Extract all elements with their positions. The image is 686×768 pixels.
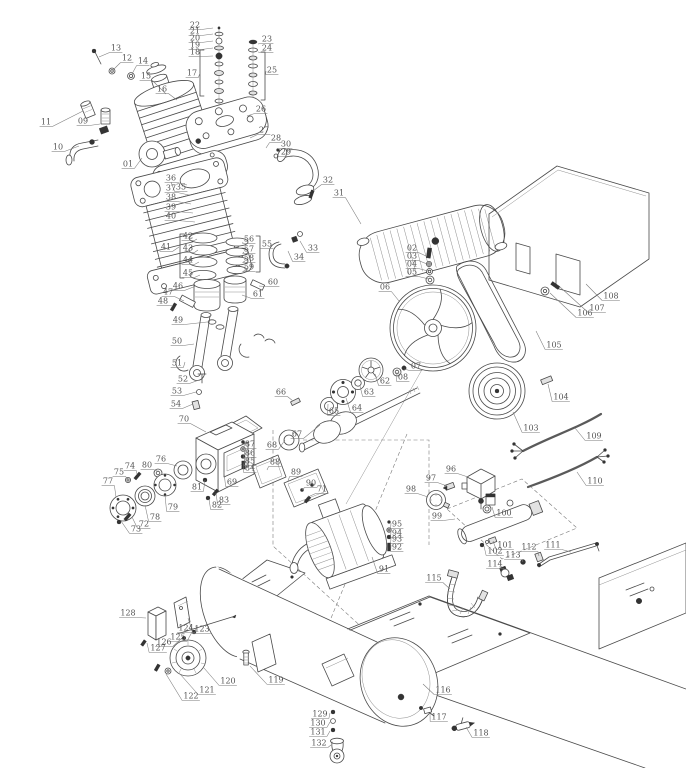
electric-motor — [295, 487, 397, 592]
piston-left — [194, 280, 220, 312]
exploded-parts-diagram: 0102030405060708091011121314151617181920… — [0, 0, 686, 768]
callout-leader-19 — [201, 48, 213, 50]
wheel — [170, 640, 206, 676]
callout-23: 23 — [262, 35, 272, 44]
callout-29: 29 — [281, 148, 291, 157]
callout-111: 111 — [545, 541, 560, 550]
callout-99: 99 — [432, 512, 442, 521]
wheel-fasteners — [154, 664, 171, 674]
callout-89: 89 — [291, 468, 301, 477]
callout-leader-70 — [190, 424, 206, 433]
callout-leader-99 — [443, 519, 455, 521]
callout-48: 48 — [158, 297, 168, 306]
caster-wheel — [330, 738, 344, 763]
callout-112: 112 — [521, 543, 536, 552]
callout-17: 17 — [187, 69, 197, 78]
callout-83: 83 — [219, 496, 229, 505]
callout-leader-01 — [134, 158, 142, 169]
callout-leader-34 — [288, 251, 293, 262]
callout-128: 128 — [120, 609, 135, 618]
callout-54: 54 — [171, 400, 181, 409]
callout-leader-13 — [99, 53, 110, 58]
callout-125: 125 — [170, 633, 185, 642]
callout-117: 117 — [431, 713, 446, 722]
callout-64: 64 — [352, 404, 362, 413]
callout-leader-131 — [327, 731, 330, 737]
callout-103: 103 — [523, 424, 538, 433]
callout-15: 15 — [141, 72, 151, 81]
callout-43: 43 — [183, 244, 193, 253]
callout-12: 12 — [122, 54, 132, 63]
callout-leader-79 — [165, 495, 167, 512]
callout-124: 124 — [178, 624, 193, 633]
callout-131: 131 — [310, 728, 325, 737]
callout-113: 113 — [505, 551, 520, 560]
callout-09: 09 — [78, 117, 88, 126]
callout-leader-10 — [64, 146, 79, 152]
callout-68: 68 — [267, 441, 277, 450]
screw-127 — [141, 640, 147, 647]
pulley-key — [541, 376, 553, 385]
valve-bracket-25 — [261, 52, 265, 100]
callout-leader-77 — [114, 486, 116, 498]
callout-06: 06 — [380, 283, 390, 292]
callout-42: 42 — [183, 232, 193, 241]
inlet-elbow — [66, 100, 110, 165]
callout-22: 22 — [190, 21, 200, 30]
flywheel — [390, 285, 476, 371]
belt-guard — [489, 166, 649, 307]
callout-leader-104 — [548, 384, 552, 402]
callout-122: 122 — [183, 692, 198, 701]
callout-leader-55 — [260, 248, 261, 249]
callout-45: 45 — [183, 269, 193, 278]
callout-61: 61 — [253, 290, 263, 299]
callout-01: 01 — [123, 160, 133, 169]
callout-102: 102 — [487, 547, 502, 556]
control-box — [148, 607, 166, 640]
callout-107: 107 — [589, 304, 604, 313]
caster-bolts — [331, 710, 336, 732]
callout-80: 80 — [142, 461, 152, 470]
cooler-muffler — [354, 200, 510, 289]
valve-stack-left — [214, 26, 224, 113]
callout-leader-53 — [183, 392, 196, 396]
callout-100: 100 — [496, 509, 511, 518]
diagram-canvas: 0102030405060708091011121314151617181920… — [0, 0, 686, 768]
callout-leader-102 — [484, 546, 486, 556]
callout-57: 57 — [244, 245, 254, 254]
callout-26: 26 — [256, 105, 266, 114]
callout-24: 24 — [262, 44, 272, 53]
callout-37: 37 — [166, 184, 176, 193]
callout-14: 14 — [138, 57, 148, 66]
callout-leader-82 — [209, 499, 211, 510]
axle-bolt — [243, 650, 249, 665]
callout-115: 115 — [426, 574, 441, 583]
callout-leader-52 — [189, 380, 199, 384]
callout-97: 97 — [426, 474, 436, 483]
callout-05: 05 — [407, 268, 417, 277]
callout-leader-98 — [417, 494, 428, 498]
callout-leader-109 — [575, 428, 585, 441]
callout-07: 07 — [411, 362, 421, 371]
callout-87: 87 — [245, 440, 255, 449]
valve-bracket-17 — [200, 50, 204, 96]
callout-33: 33 — [308, 244, 318, 253]
callout-leader-120 — [204, 668, 219, 686]
callout-81: 81 — [192, 483, 202, 492]
callout-58: 58 — [244, 254, 254, 263]
piston-right — [224, 276, 246, 303]
callout-leader-20 — [201, 41, 213, 43]
callout-52: 52 — [178, 375, 188, 384]
callout-leader-122 — [166, 674, 182, 701]
callout-32: 32 — [323, 176, 333, 185]
callout-98: 98 — [406, 485, 416, 494]
callout-leader-24 — [258, 52, 261, 53]
connecting-rods — [190, 307, 239, 381]
callout-119: 119 — [268, 676, 283, 685]
callout-leader-28 — [266, 143, 270, 149]
callout-86: 86 — [245, 449, 255, 458]
cooler-pipe — [269, 232, 303, 269]
callout-118: 118 — [473, 729, 488, 738]
outlet-manifold — [456, 494, 543, 545]
callout-79: 79 — [168, 503, 178, 512]
callout-13: 13 — [111, 44, 121, 53]
valve-stack-right — [248, 40, 258, 105]
callout-leader-115 — [443, 583, 450, 590]
callout-leader-108 — [586, 284, 602, 301]
callout-110: 110 — [587, 477, 602, 486]
callout-85: 85 — [245, 457, 255, 466]
callout-leader-23 — [258, 44, 261, 45]
callout-28: 28 — [271, 134, 281, 143]
callout-92: 92 — [392, 543, 402, 552]
callout-121: 121 — [199, 686, 214, 695]
callout-leader-06 — [391, 292, 399, 302]
callout-leader-106 — [550, 293, 576, 318]
callout-leader-09 — [89, 124, 100, 126]
callout-11: 11 — [41, 118, 51, 127]
callout-62: 62 — [380, 377, 390, 386]
callout-leader-97 — [437, 483, 447, 487]
callout-34: 34 — [294, 253, 304, 262]
callout-leader-96 — [457, 474, 468, 478]
callout-31: 31 — [334, 189, 344, 198]
callout-leader-118 — [466, 727, 472, 738]
callout-77: 77 — [103, 477, 113, 486]
platform-right — [599, 543, 686, 649]
callout-116: 116 — [435, 686, 450, 695]
callout-105: 105 — [546, 341, 561, 350]
callout-25: 25 — [267, 66, 277, 75]
callout-74: 74 — [125, 462, 135, 471]
callout-35: 35 — [176, 183, 186, 192]
callout-16: 16 — [157, 85, 167, 94]
callout-90: 90 — [306, 479, 316, 488]
callout-49: 49 — [173, 316, 183, 325]
callout-leader-49 — [184, 322, 207, 325]
callout-63: 63 — [364, 388, 374, 397]
callout-leader-74 — [136, 471, 137, 475]
callout-53: 53 — [172, 387, 182, 396]
callout-104: 104 — [553, 393, 568, 402]
callout-leader-31 — [345, 198, 361, 225]
callout-60: 60 — [268, 278, 278, 287]
ball-valve — [450, 715, 476, 732]
callout-leader-127 — [147, 643, 149, 653]
callout-38: 38 — [166, 193, 176, 202]
callout-leader-110 — [577, 472, 586, 486]
wrist-pin-left — [170, 295, 195, 311]
callout-leader-12 — [113, 63, 121, 71]
callout-75: 75 — [114, 468, 124, 477]
callout-55: 55 — [262, 240, 272, 249]
callout-leader-103 — [513, 412, 522, 433]
callout-leader-33 — [300, 241, 307, 253]
callout-70: 70 — [179, 415, 189, 424]
callout-46: 46 — [173, 282, 183, 291]
callout-109: 109 — [586, 432, 601, 441]
callout-leader-54 — [182, 404, 193, 409]
callout-95: 95 — [392, 520, 402, 529]
callout-leader-89 — [288, 477, 290, 482]
callout-88: 88 — [270, 458, 280, 467]
callout-78: 78 — [150, 513, 160, 522]
callout-39: 39 — [166, 203, 176, 212]
ring-bracket-55 — [256, 236, 260, 272]
callout-leader-66 — [287, 397, 293, 402]
callout-leader-18 — [201, 56, 213, 57]
callout-132: 132 — [311, 739, 326, 748]
callout-76: 76 — [156, 455, 166, 464]
callout-leader-21 — [201, 34, 213, 36]
callout-08: 08 — [398, 373, 408, 382]
callout-41: 41 — [161, 243, 171, 252]
callout-66: 66 — [276, 388, 286, 397]
callout-94: 94 — [392, 529, 402, 538]
callout-120: 120 — [220, 677, 235, 686]
callout-73: 73 — [131, 525, 141, 534]
callout-108: 108 — [603, 292, 618, 301]
callout-leader-51 — [183, 362, 185, 368]
callout-114: 114 — [487, 560, 502, 569]
callout-91: 91 — [379, 565, 389, 574]
callout-leader-22 — [201, 28, 213, 30]
callout-130: 130 — [310, 719, 325, 728]
motor-pulley — [469, 363, 525, 419]
callout-27: 27 — [259, 126, 269, 135]
callout-leader-14 — [132, 66, 137, 75]
callout-leader-50 — [183, 344, 194, 346]
callout-56: 56 — [244, 235, 254, 244]
callout-leader-132 — [328, 745, 331, 748]
callout-71: 71 — [317, 485, 327, 494]
callout-40: 40 — [166, 212, 176, 221]
callout-leader-128 — [137, 618, 146, 619]
callout-10: 10 — [53, 143, 63, 152]
callout-96: 96 — [446, 465, 456, 474]
callout-leader-130 — [327, 722, 330, 728]
callout-47: 47 — [163, 288, 173, 297]
callout-59: 59 — [244, 263, 254, 272]
callout-leader-105 — [536, 331, 545, 350]
side-plates — [252, 455, 328, 507]
callout-44: 44 — [183, 256, 193, 265]
callout-36: 36 — [166, 174, 176, 183]
callout-leader-129 — [329, 713, 330, 719]
callout-69: 69 — [227, 478, 237, 487]
pressure-gauge — [427, 491, 450, 510]
callout-67: 67 — [292, 430, 302, 439]
callout-51: 51 — [172, 359, 182, 368]
callout-65: 65 — [329, 407, 339, 416]
callout-129: 129 — [312, 710, 327, 719]
callout-leader-73 — [121, 521, 130, 534]
callout-50: 50 — [172, 337, 182, 346]
callout-30: 30 — [281, 140, 291, 149]
callout-127: 127 — [150, 644, 165, 653]
